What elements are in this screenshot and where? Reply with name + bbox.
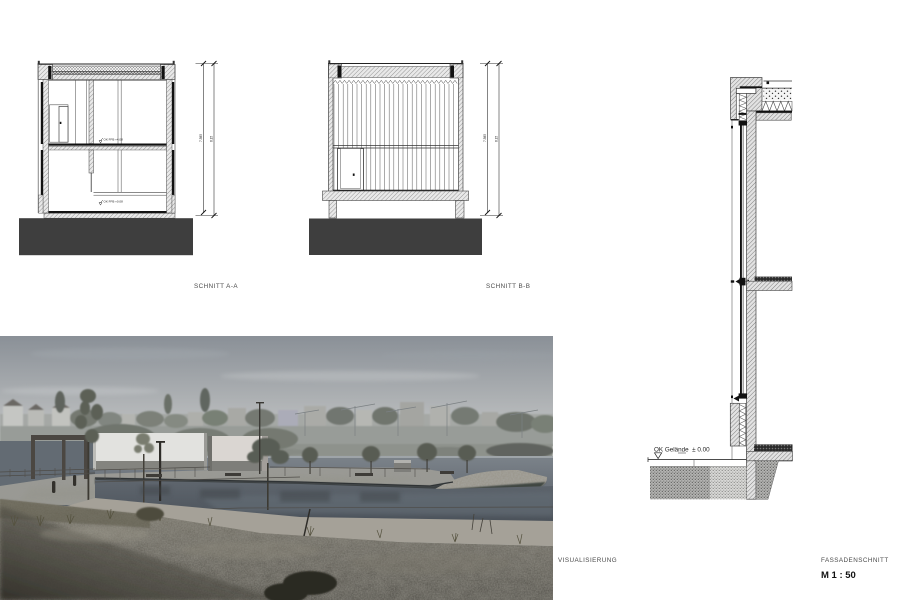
svg-text:7.385: 7.385 bbox=[483, 134, 487, 142]
svg-text:8.15: 8.15 bbox=[209, 136, 213, 142]
svg-text:OK FFB +0.08: OK FFB +0.08 bbox=[104, 200, 124, 204]
svg-text:OK Gelände ± 0.00: OK Gelände ± 0.00 bbox=[654, 447, 710, 454]
svg-text:7.385: 7.385 bbox=[199, 134, 203, 142]
svg-text:OK FFB +4.08: OK FFB +4.08 bbox=[104, 138, 124, 142]
svg-text:8.15: 8.15 bbox=[494, 136, 498, 142]
